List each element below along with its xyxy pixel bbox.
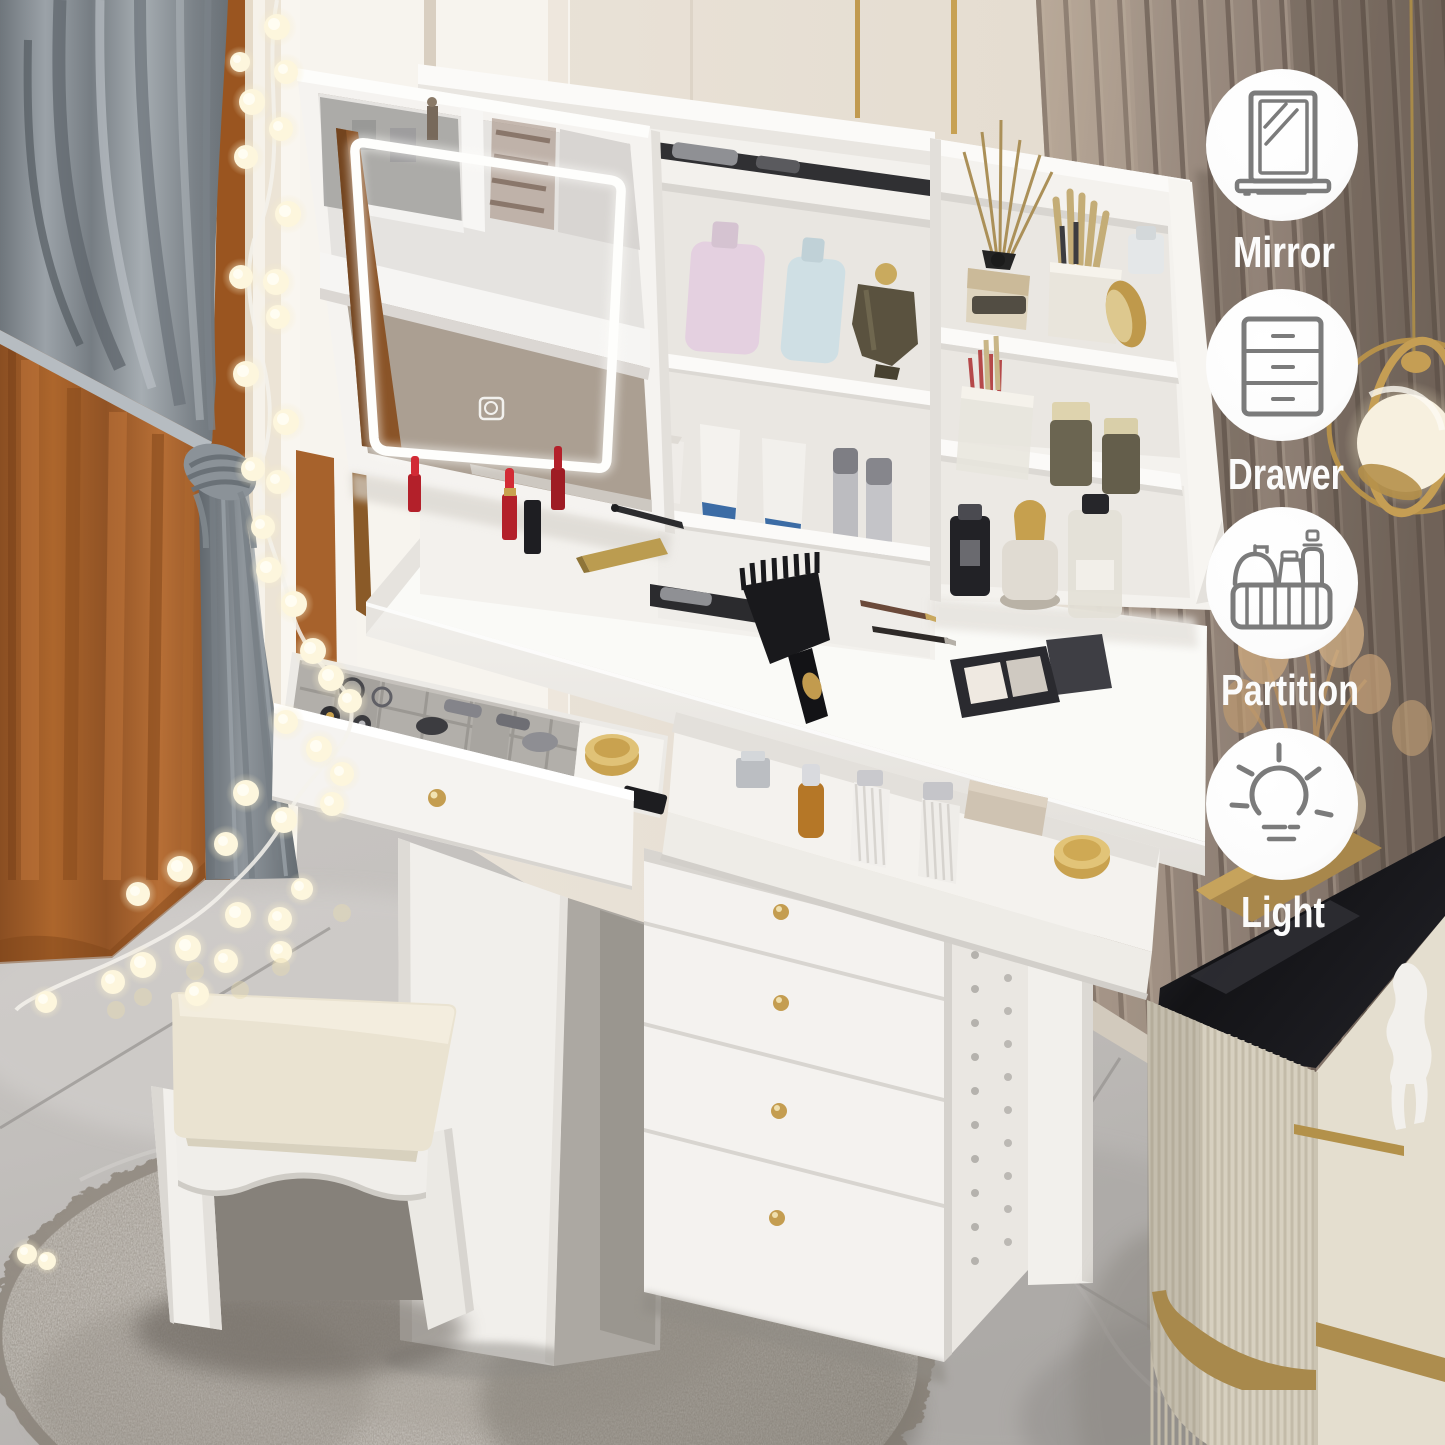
svg-text:Drawer: Drawer bbox=[1228, 450, 1344, 499]
svg-text:Partition: Partition bbox=[1221, 666, 1359, 715]
svg-text:Light: Light bbox=[1241, 888, 1325, 937]
svg-text:Mirror: Mirror bbox=[1233, 228, 1335, 277]
